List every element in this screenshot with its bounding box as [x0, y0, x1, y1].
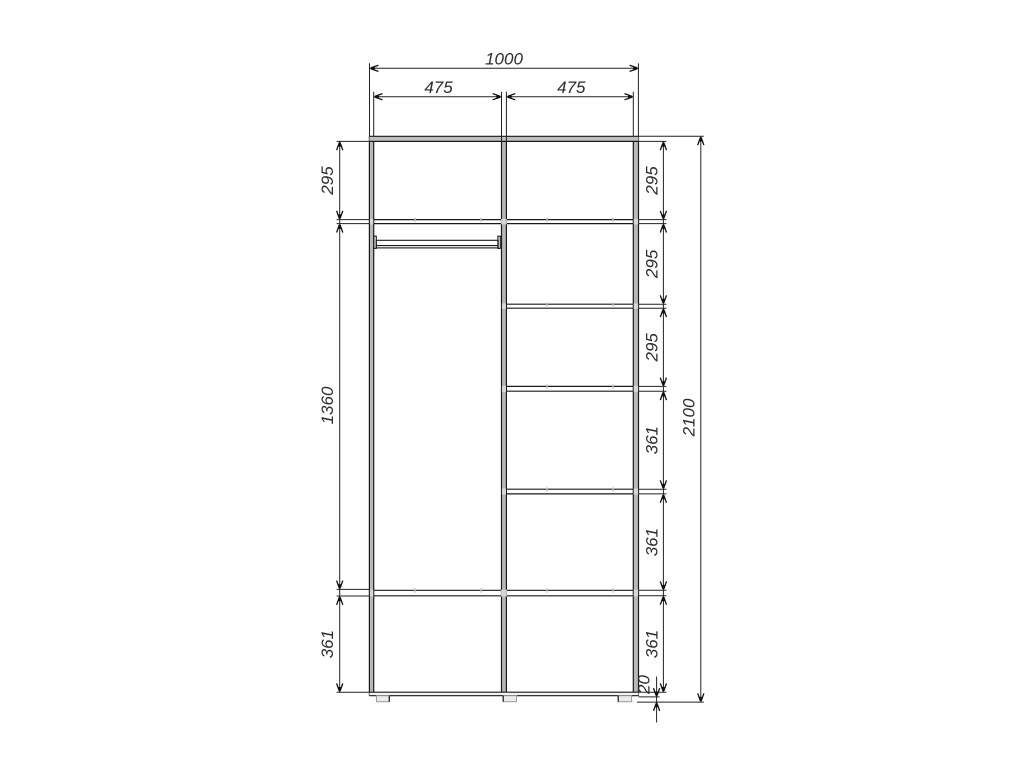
svg-text:295: 295: [642, 333, 661, 363]
svg-text:475: 475: [424, 78, 453, 97]
svg-text:361: 361: [642, 528, 661, 556]
svg-text:295: 295: [642, 249, 661, 279]
svg-text:2100: 2100: [679, 398, 698, 437]
svg-text:475: 475: [557, 78, 586, 97]
svg-text:361: 361: [318, 630, 337, 658]
svg-text:1000: 1000: [485, 50, 523, 69]
svg-text:1360: 1360: [318, 386, 337, 424]
svg-text:20: 20: [635, 675, 654, 695]
svg-text:361: 361: [642, 426, 661, 454]
svg-text:361: 361: [642, 630, 661, 658]
svg-text:295: 295: [642, 166, 661, 196]
svg-text:295: 295: [318, 166, 337, 196]
